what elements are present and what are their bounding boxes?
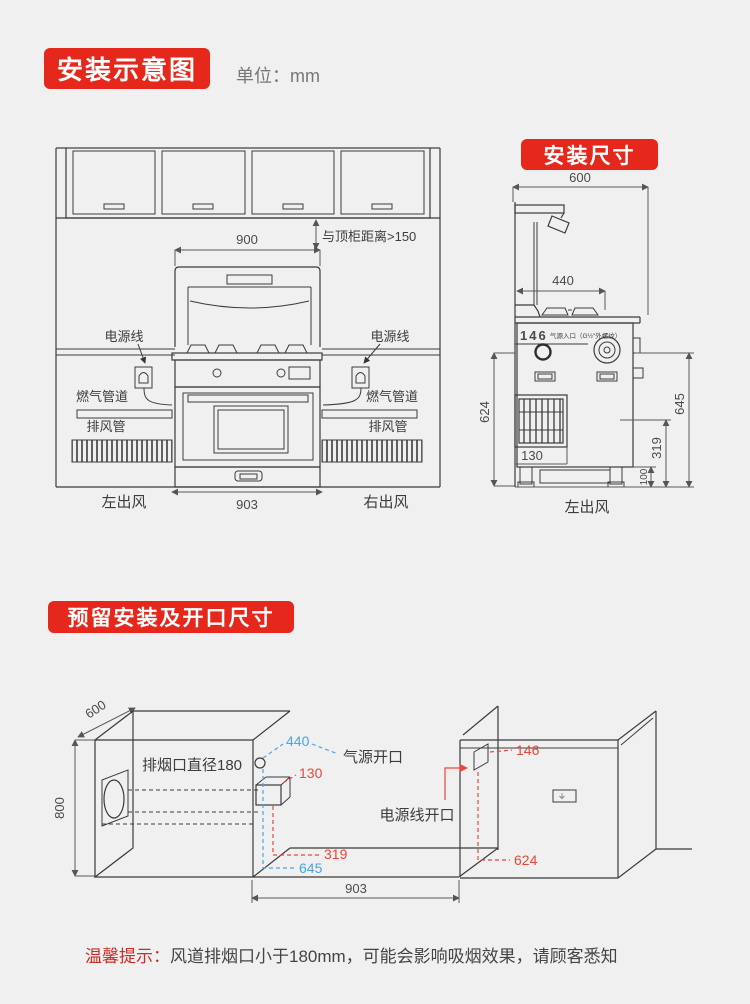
exhaust-duct [322,440,422,462]
installation-diagram-page: { "header": { "badge": "安装示意图", "unit": … [0,0,750,1004]
svg-text:645: 645 [672,393,687,415]
svg-text:903: 903 [345,881,367,896]
svg-text:900: 900 [236,232,258,247]
svg-text:130: 130 [299,765,323,781]
outlet-icon [135,367,152,388]
exhaust-duct [72,440,172,462]
svg-text:与顶柜距离>150: 与顶柜距离>150 [322,229,416,244]
cabinet-handle [283,204,303,209]
svg-text:100: 100 [639,468,650,485]
opening-diagram: 600 800 排烟口直径180 440 气源开口 [40,688,710,913]
svg-text:319: 319 [324,846,348,862]
dim-height-800: 800 [52,740,95,876]
dim-900: 900 [175,232,320,266]
knob-icon [277,369,285,377]
svg-text:440: 440 [286,733,310,749]
side-body: 146 气源入口（G½″外螺纹） [515,323,643,467]
side-outlet-label: 左出风 [564,499,609,516]
gas-pipe-label: 燃气管道 [366,389,418,404]
control-panel [175,360,320,387]
svg-text:146: 146 [516,742,540,758]
base-drawer [175,467,320,487]
dim-600: 600 [513,172,648,315]
cabinet-handle [193,204,213,209]
knob-icon [594,337,620,363]
display-window [289,367,310,379]
svg-text:319: 319 [649,437,664,459]
note-body: 风道排烟口小于180mm，可能会影响吸烟效果，请顾客悉知 [170,947,618,966]
power-cord-line [144,388,172,405]
svg-text:600: 600 [569,172,591,185]
duct-label: 排烟口直径180 [142,757,242,774]
svg-text:624: 624 [514,852,538,868]
footer-note: 温馨提示：风道排烟口小于180mm，可能会影响吸烟效果，请顾客悉知 [85,942,618,967]
cabinet-handle [104,204,124,209]
svg-text:903: 903 [236,497,258,512]
side-view-badge: 安装尺寸 [521,139,658,170]
oven-handle [188,395,308,402]
front-view-diagram: 900 与顶柜距离>150 [40,138,450,530]
right-cabinet [460,706,692,878]
exhaust-pipe-label: 排风管 [368,419,407,434]
alcove-floor [253,848,498,877]
dim-903-open: 903 [252,880,459,903]
gas-opening-label: 气源开口 [343,749,403,766]
svg-text:600: 600 [82,697,108,721]
power-cord-label: 电源线 [104,329,143,344]
gas-inlet-note: 气源入口（G½″外螺纹） [550,331,621,340]
svg-text:624: 624 [480,401,492,423]
knob-icon [213,369,221,377]
power-cord-line [323,388,361,405]
gas-opening: 440 气源开口 [255,733,403,768]
dim-130: 130 [515,447,567,464]
gas-inlet-icon [536,345,551,360]
note-prefix: 温馨提示： [85,947,170,966]
unit-label: 单位：mm [236,62,320,88]
power-opening-label: 电源线开口 [379,807,454,824]
opening-badge: 预留安装及开口尺寸 [48,601,294,633]
gas-pipe [322,410,417,418]
scene-frame [56,148,440,487]
cabinet-handle [372,204,392,209]
oven-door [175,387,320,467]
svg-text:645: 645 [299,860,323,876]
dim-624: 624 [480,353,515,486]
left-wall: 电源线 燃气管道 排风管 左出风 [56,329,175,511]
gas-pipe [77,410,172,418]
dim-903: 903 [172,492,322,512]
outlet-left-label: 左出风 [101,494,146,511]
top-gap-dim: 与顶柜距离>150 [316,220,416,249]
burner-counter [515,308,640,323]
exhaust-duct: 排烟口直径180 [102,757,259,826]
title-badge: 安装示意图 [44,48,210,89]
gas-pipe-label: 燃气管道 [76,389,128,404]
oven-window [214,406,288,453]
gas-inlet-number: 146 [520,328,548,343]
outlet-right-label: 右出风 [363,494,408,511]
leader-319: 319 [273,806,348,862]
exhaust-pipe-label: 排风管 [86,419,125,434]
legs [518,467,624,487]
hob-burners [172,345,322,360]
side-view-diagram: 600 440 146 气源入口（G½″外螺纹） [480,172,750,524]
svg-text:440: 440 [552,273,574,288]
appliance-hood [175,267,320,347]
box-opening-130: 130 [256,765,323,805]
svg-text:130: 130 [521,448,543,463]
right-wall: 电源线 燃气管道 排风管 右出风 [322,329,440,511]
power-cord-label: 电源线 [370,329,409,344]
outlet-icon [352,367,369,388]
svg-text:800: 800 [52,797,67,819]
upper-cabinets [66,148,430,218]
